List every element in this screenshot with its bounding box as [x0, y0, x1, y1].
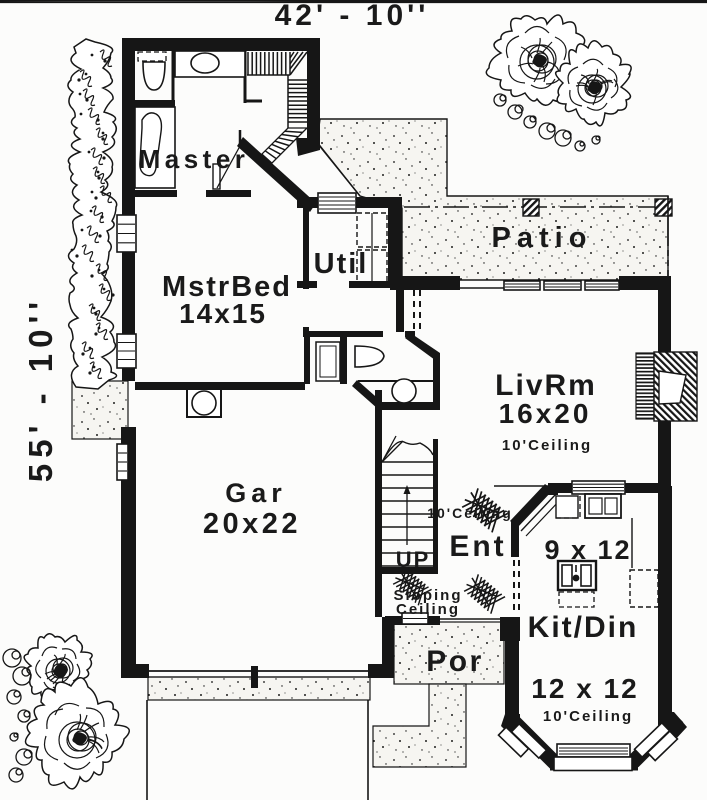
svg-text:Ceiling: Ceiling [396, 601, 460, 618]
svg-text:10'Ceiling: 10'Ceiling [543, 708, 633, 725]
svg-text:10'Ceiling: 10'Ceiling [502, 437, 592, 454]
svg-text:14x15: 14x15 [179, 298, 267, 329]
svg-text:12 x 12: 12 x 12 [531, 673, 638, 704]
svg-text:Master: Master [139, 144, 250, 174]
svg-text:16x20: 16x20 [499, 398, 592, 429]
svg-text:10'Ceiling: 10'Ceiling [427, 505, 513, 521]
svg-text:Por: Por [426, 645, 484, 678]
svg-text:Kit/Din: Kit/Din [528, 611, 639, 644]
svg-text:Patio: Patio [492, 222, 593, 254]
svg-text:55' - 10'': 55' - 10'' [22, 296, 59, 482]
svg-text:Ent: Ent [449, 530, 506, 563]
svg-text:20x22: 20x22 [203, 508, 301, 540]
svg-text:42' - 10'': 42' - 10'' [275, 0, 430, 32]
svg-text:Util: Util [314, 248, 369, 280]
svg-text:UP: UP [396, 547, 431, 572]
svg-text:9 x 12: 9 x 12 [544, 535, 631, 565]
svg-text:Gar: Gar [225, 478, 287, 508]
